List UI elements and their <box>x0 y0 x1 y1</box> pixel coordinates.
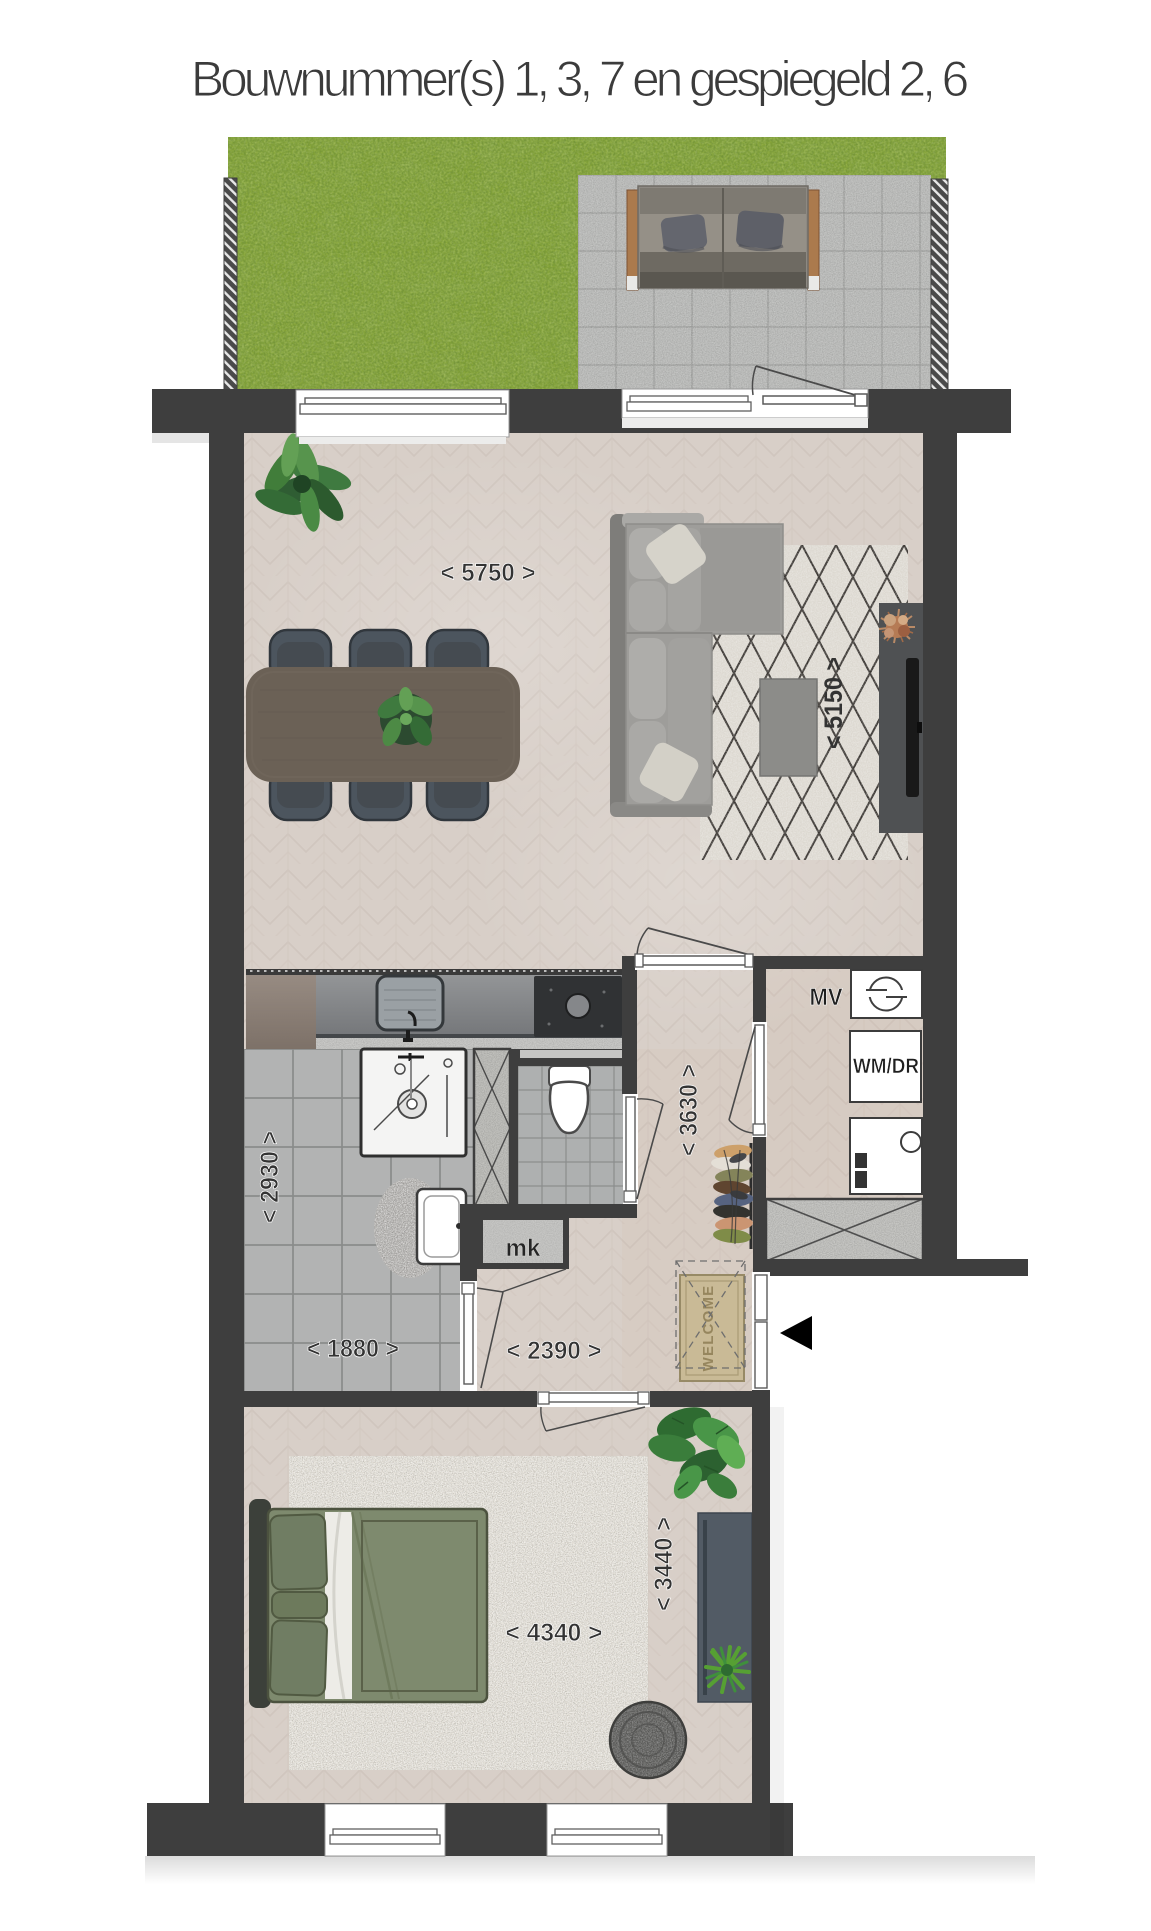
svg-text:WELCOME: WELCOME <box>700 1285 717 1372</box>
svg-text:Bouwnummer(s) 1, 3, 7 en gespi: Bouwnummer(s) 1, 3, 7 en gespiegeld 2, 6 <box>191 51 968 107</box>
svg-text:< 1880 >: < 1880 > <box>307 1335 399 1363</box>
svg-text:< 3630 >: < 3630 > <box>675 1064 703 1156</box>
svg-text:WM/DR: WM/DR <box>853 1055 919 1078</box>
svg-text:< 2390 >: < 2390 > <box>507 1337 602 1365</box>
svg-text:< 5150 >: < 5150 > <box>820 657 848 749</box>
svg-text:mk: mk <box>506 1235 541 1262</box>
svg-text:< 5750 >: < 5750 > <box>441 559 536 587</box>
svg-text:MV: MV <box>810 984 843 1011</box>
svg-text:< 4340 >: < 4340 > <box>506 1619 603 1647</box>
svg-text:< 3440 >: < 3440 > <box>650 1517 678 1611</box>
svg-text:< 2930 >: < 2930 > <box>256 1131 284 1223</box>
